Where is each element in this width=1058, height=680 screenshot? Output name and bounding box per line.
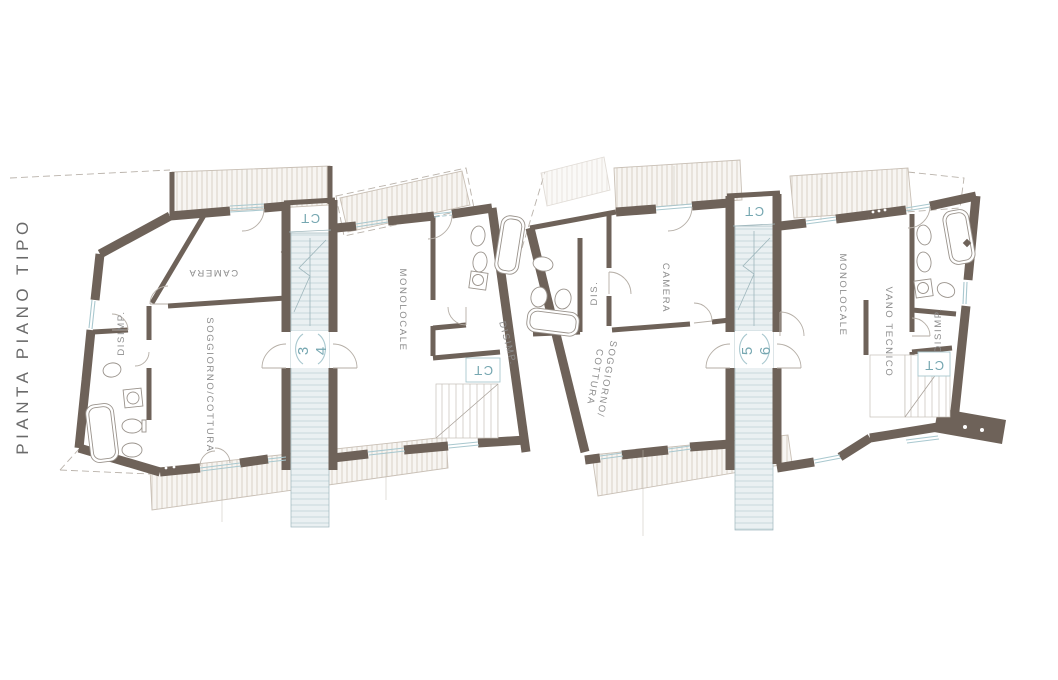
washing-machine — [914, 279, 933, 298]
unit2-internal-stair: CT — [436, 358, 500, 438]
unit3-bathroom — [526, 255, 581, 337]
stairwell-b: CT 5 6 — [706, 193, 801, 530]
unit4-monolocale-label: MONOLOCALE — [837, 253, 848, 336]
stairwell-b-ct-label: CT — [744, 204, 764, 219]
door-unit1-entry — [262, 344, 286, 368]
unit1-soggiorno-label: SOGGIORNO/COTTURA — [204, 317, 215, 452]
unit4: CT — [777, 196, 1006, 468]
bidet — [472, 251, 489, 273]
bidet — [553, 288, 573, 311]
unit2: CT MONOLOCALE DIS — [333, 208, 526, 458]
door-unit2-entry — [333, 344, 357, 368]
stairwell-a-ct-label: CT — [300, 211, 320, 226]
unit3-camera-label: CAMERA — [660, 263, 671, 313]
door-unit4-entry — [777, 344, 801, 368]
unit4-vano-tecnico-label: VANO TECNICO — [883, 287, 894, 378]
toilet — [470, 225, 487, 247]
bidet — [916, 251, 933, 273]
floor-plan-sheet: PIANTA PIANO TIPO CT 3 4 — [0, 0, 1058, 680]
unit2-ct-label: CT — [473, 363, 493, 378]
bidet — [122, 443, 142, 457]
sink — [102, 361, 123, 378]
apartment-number-5: 5 — [739, 347, 756, 355]
sheet-title: PIANTA PIANO TIPO — [13, 217, 32, 454]
terrace-top-unit1 — [172, 166, 330, 214]
unit3-dis-label: DIS. — [589, 281, 600, 306]
unit4-disimp-label: DISIMP. — [933, 307, 944, 352]
toilet — [915, 224, 932, 246]
apartment-number-4: 4 — [313, 347, 330, 355]
washing-machine — [123, 388, 143, 408]
sink — [935, 280, 957, 300]
unit4-internal-stair: CT — [870, 352, 950, 417]
apartment-number-3: 3 — [295, 347, 312, 355]
terrace-top-unit3-side — [541, 157, 610, 206]
unit2-monolocale-label: MONOLOCALE — [397, 268, 408, 351]
unit3-soggiorno-label: SOGGIORNO/ COTTURA — [582, 338, 618, 419]
apartment-number-6: 6 — [757, 347, 774, 355]
unit3: DIS. CAMERA SOGGIORNO/ COTTURA — [526, 203, 730, 460]
floor-plan-drawing: PIANTA PIANO TIPO CT 3 4 — [0, 0, 1058, 680]
unit1-bathroom — [85, 361, 146, 463]
door-unit3-entry — [706, 344, 730, 368]
unit1-disimp-label: DISIMP. — [116, 310, 127, 355]
washing-machine — [469, 271, 488, 290]
toilet — [122, 419, 146, 433]
unit4-ct-label: CT — [924, 358, 944, 373]
unit1-camera-label: CAMERA — [188, 267, 238, 278]
